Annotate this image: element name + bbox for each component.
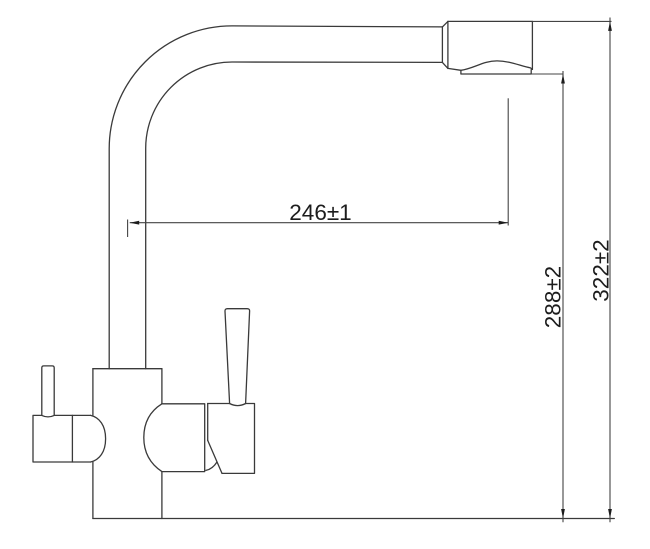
svg-text:288±2: 288±2 xyxy=(541,266,566,328)
svg-text:246±1: 246±1 xyxy=(289,200,351,225)
svg-text:322±2: 322±2 xyxy=(589,239,614,301)
